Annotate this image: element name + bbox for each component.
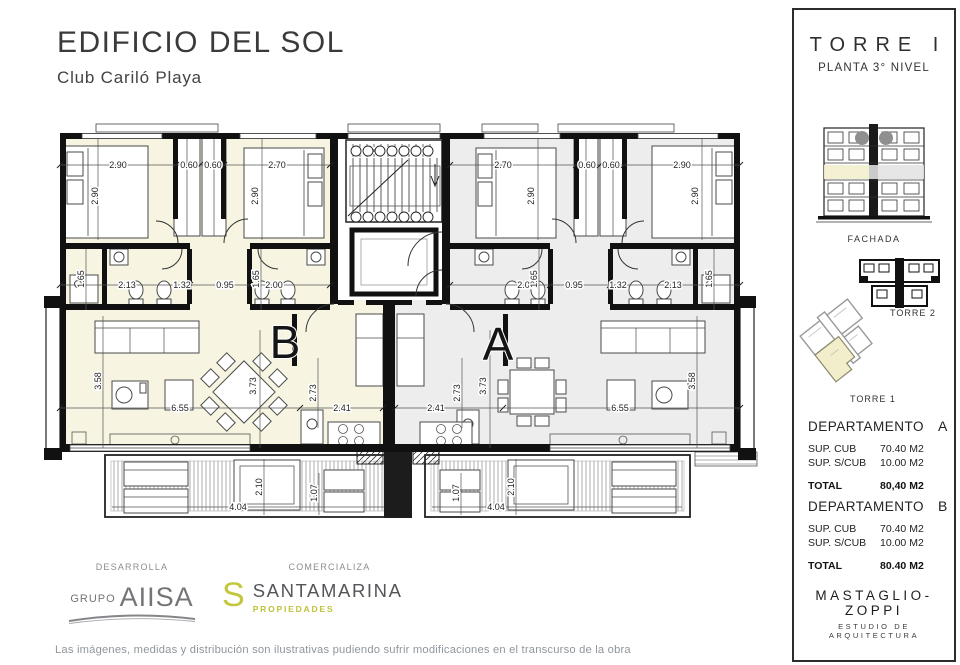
dim-label: 2.90 [109,160,127,170]
dim-label: 1.65 [251,270,261,288]
dept-a-name: DEPARTAMENTO [808,419,924,434]
dim-label: 1.32 [173,280,191,290]
dim-label: 0.95 [565,280,583,290]
unit-a-label: A [483,318,514,370]
tower-title: TORRE I [794,34,954,57]
santamarina-s-icon: S [222,580,245,610]
dim-label: 2.41 [333,403,351,413]
unit-b-label: B [270,316,301,368]
dept-a-total: TOTAL80,40 M2 [808,480,942,492]
fachada-label: FACHADA [794,234,954,244]
dept-b-row-cub: SUP. CUB70.40 M2 [808,522,942,536]
stair-core [346,140,442,222]
page-title: EDIFICIO DEL SOL [57,26,345,60]
dim-label: 0.60 [204,160,222,170]
dim-label: 6.55 [611,403,629,413]
disclaimer-text: Las imágenes, medidas y distribución son… [55,644,631,656]
dept-b-unit: B [938,498,948,514]
dim-label: 1.65 [76,270,86,288]
dept-b-total: TOTAL80.40 M2 [808,560,942,572]
dim-label: 2.13 [664,280,682,290]
dim-label: 6.55 [171,403,189,413]
dim-label: 4.04 [229,502,247,512]
torre1-drawing [794,292,898,400]
balcony-b [105,455,390,517]
dim-label: 4.04 [487,502,505,512]
dim-label: 2.73 [308,384,318,402]
dept-b-row-scub: SUP. S/CUB10.00 M2 [808,536,942,550]
desarrolla-block: DESARROLLA GRUPOAIISA [62,562,202,631]
dim-label: 2.90 [250,187,260,205]
dim-label: 2.90 [526,187,536,205]
dim-label: 1.07 [309,484,319,502]
dim-label: 2.13 [118,280,136,290]
comercializa-block: COMERCIALIZA S SANTAMARINA PROPIEDADES [222,562,407,614]
studio-name: MASTAGLIO-ZOPPI [794,588,954,618]
desarrolla-label: DESARROLLA [62,562,202,572]
dept-a-row-cub: SUP. CUB70.40 M2 [808,442,942,456]
studio-subtitle: ESTUDIO DE ARQUITECTURA [794,622,954,640]
floor-plan: 2.90 0.60 0.60 2.70 2.70 0.60 0.60 2.90 … [12,118,784,538]
grupo-aiisa-logo: GRUPOAIISA [62,582,202,613]
page-subtitle: Club Cariló Playa [57,68,345,88]
balcony-a [425,455,690,517]
dim-label: 1.07 [451,484,461,502]
torre1-label: TORRE 1 [850,394,896,404]
dim-label: 3.73 [478,377,488,395]
dim-label: 0.95 [216,280,234,290]
dim-label: 0.60 [578,160,596,170]
fachada-drawing [816,122,932,226]
dim-label: 2.10 [506,478,516,496]
dept-a-unit: A [938,418,948,434]
dim-label: 2.10 [254,478,264,496]
sidebar-panel: TORRE I PLANTA 3° NIVEL FACH [792,8,956,662]
floor-plan-svg: 2.90 0.60 0.60 2.70 2.70 0.60 0.60 2.90 … [12,118,784,538]
dim-label: 2.70 [268,160,286,170]
dim-label: 3.73 [248,377,258,395]
grupo-swoosh [67,614,197,626]
dim-label: 2.73 [452,384,462,402]
dept-a-title: DEPARTAMENTOA [808,418,942,434]
plan-sheet: EDIFICIO DEL SOL Club Cariló Playa [0,0,960,665]
dim-label: 2.90 [690,187,700,205]
santamarina-logo: S SANTAMARINA PROPIEDADES [222,580,407,614]
dim-label: 2.00 [265,280,283,290]
dim-label: 1.65 [704,270,714,288]
dim-label: 1.65 [529,270,539,288]
dim-label: 2.90 [90,187,100,205]
dept-b-name: DEPARTAMENTO [808,499,924,514]
dim-label: 2.90 [673,160,691,170]
elevator [352,230,436,294]
studio-signature: MASTAGLIO-ZOPPI ESTUDIO DE ARQUITECTURA [794,588,954,640]
dim-label: 0.60 [602,160,620,170]
tower-subtitle: PLANTA 3° NIVEL [794,62,954,74]
dim-label: 2.41 [427,403,445,413]
dim-label: 3.58 [687,372,697,390]
dim-label: 2.70 [494,160,512,170]
dept-b-section: DEPARTAMENTOB SUP. CUB70.40 M2 SUP. S/CU… [808,498,942,572]
dept-a-section: DEPARTAMENTOA SUP. CUB70.40 M2 SUP. S/CU… [808,418,942,492]
dim-label: 1.32 [609,280,627,290]
dim-label: 0.60 [180,160,198,170]
dept-a-row-scub: SUP. S/CUB10.00 M2 [808,456,942,470]
comercializa-label: COMERCIALIZA [222,562,407,572]
dim-label: 3.58 [93,372,103,390]
title-block: EDIFICIO DEL SOL Club Cariló Playa [57,26,345,88]
dept-b-title: DEPARTAMENTOB [808,498,942,514]
